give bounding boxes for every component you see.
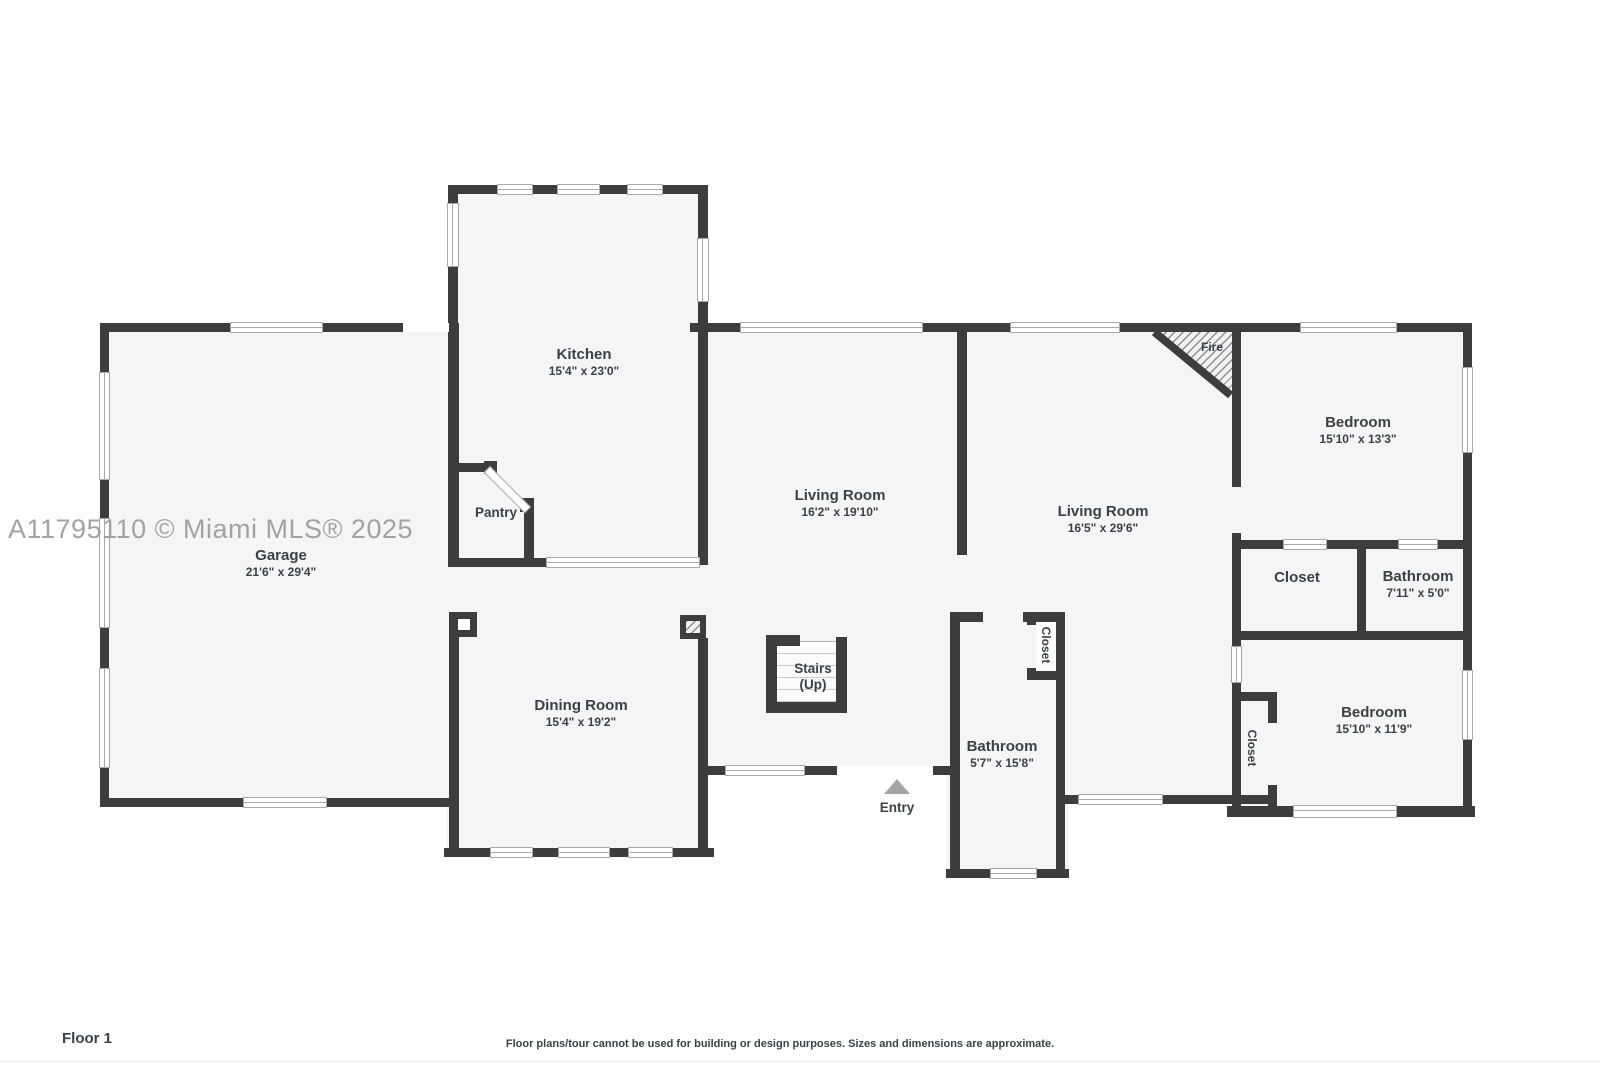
window	[725, 765, 805, 776]
wall	[1357, 540, 1366, 640]
window	[1462, 670, 1473, 740]
room-name: Dining Room	[534, 697, 627, 715]
room-name: Entry	[880, 800, 915, 816]
room-label-living-room-1: Living Room 16'2" x 19'10"	[795, 487, 886, 521]
window	[1010, 322, 1120, 333]
window	[740, 322, 923, 333]
room-name: Closet	[1274, 569, 1320, 587]
window	[1231, 646, 1242, 683]
wall	[1232, 332, 1241, 807]
window	[99, 668, 110, 768]
room-dims: 16'2" x 19'10"	[795, 505, 886, 521]
door-opening	[1232, 487, 1241, 533]
room-floor	[449, 560, 708, 615]
room-name: Living Room	[795, 487, 886, 505]
window	[627, 184, 663, 195]
window	[1293, 805, 1397, 818]
room-name: Pantry	[475, 505, 517, 521]
room-label-stairs: Stairs (Up)	[794, 661, 832, 693]
window	[557, 184, 600, 195]
door-opening	[1268, 723, 1277, 785]
window	[1462, 367, 1473, 453]
room-name: Bathroom	[1383, 568, 1454, 586]
window	[990, 868, 1037, 879]
window	[230, 322, 323, 333]
window	[697, 238, 709, 302]
window	[628, 847, 673, 858]
window	[1283, 539, 1327, 550]
wall	[1232, 631, 1472, 640]
room-label-dining-room: Dining Room 15'4" x 19'2"	[534, 697, 627, 731]
room-name: Closet	[1039, 627, 1053, 664]
room-label-kitchen: Kitchen 15'4" x 23'0"	[549, 346, 619, 380]
room-dims: 15'4" x 23'0"	[549, 364, 619, 380]
room-dims: 16'5" x 29'6"	[1058, 521, 1149, 537]
window	[447, 203, 459, 267]
room-label-garage: Garage 21'6" x 29'4"	[246, 547, 316, 581]
column-detail-hatched	[686, 621, 700, 633]
wall	[1056, 612, 1065, 878]
window	[99, 372, 110, 480]
room-name: Bedroom	[1319, 414, 1396, 432]
room-dims: 15'10" x 11'9"	[1336, 722, 1412, 738]
room-name: Fire	[1201, 340, 1223, 354]
floor-plan: Garage 21'6" x 29'4" Kitchen 15'4" x 23'…	[0, 0, 1600, 1066]
door-opening	[837, 766, 933, 775]
wall	[448, 558, 546, 567]
room-label-bedroom-2: Bedroom 15'10" x 11'9"	[1336, 704, 1412, 738]
window	[490, 847, 533, 858]
wall	[950, 612, 960, 878]
room-dims: 21'6" x 29'4"	[246, 565, 316, 581]
room-floor	[446, 610, 708, 853]
wall	[957, 332, 967, 555]
room-name: Garage	[246, 547, 316, 565]
room-dims: 15'10" x 13'3"	[1319, 432, 1396, 448]
room-name: Living Room	[1058, 503, 1149, 521]
floor-plan-page: Garage 21'6" x 29'4" Kitchen 15'4" x 23'…	[0, 0, 1600, 1066]
entry-arrow-icon	[884, 779, 910, 794]
room-label-bedroom-1: Bedroom 15'10" x 13'3"	[1319, 414, 1396, 448]
room-name: Kitchen	[549, 346, 619, 364]
door-opening	[983, 612, 1023, 622]
stairs-direction: (Up)	[794, 677, 832, 693]
room-label-bathroom-2: Bathroom 5'7" x 15'8"	[967, 738, 1038, 772]
room-label-closet-3: Closet	[1039, 627, 1053, 664]
window	[497, 184, 533, 195]
disclaimer-text: Floor plans/tour cannot be used for buil…	[506, 1038, 1054, 1050]
door-opening	[1027, 625, 1036, 668]
door-opening	[449, 567, 459, 612]
window	[558, 847, 610, 858]
wall	[766, 635, 800, 646]
room-name: Bathroom	[967, 738, 1038, 756]
window	[546, 557, 700, 568]
door-opening	[403, 323, 449, 332]
room-label-closet-2: Closet	[1245, 730, 1259, 767]
window	[243, 797, 327, 808]
room-name: Closet	[1245, 730, 1259, 767]
window	[1078, 794, 1163, 805]
window	[1398, 539, 1438, 550]
room-dims: 15'4" x 19'2"	[534, 715, 627, 731]
wall	[698, 638, 708, 857]
room-dims: 7'11" x 5'0"	[1383, 586, 1454, 602]
room-label-pantry: Pantry	[475, 505, 517, 521]
divider-line	[0, 1061, 1600, 1062]
mls-watermark: A11795110 © Miami MLS® 2025	[8, 514, 413, 545]
room-name: Bedroom	[1336, 704, 1412, 722]
room-label-entry: Entry	[880, 800, 915, 816]
floor-label: Floor 1	[62, 1030, 112, 1047]
room-label-fireplace: Fire	[1201, 340, 1223, 354]
room-label-bathroom-1: Bathroom 7'11" x 5'0"	[1383, 568, 1454, 602]
room-label-living-room-2: Living Room 16'5" x 29'6"	[1058, 503, 1149, 537]
window	[1300, 322, 1397, 333]
stairs-name: Stairs	[794, 661, 832, 677]
room-label-closet-1: Closet	[1274, 569, 1320, 587]
room-dims: 5'7" x 15'8"	[967, 756, 1038, 772]
column-detail	[458, 619, 470, 630]
wall	[766, 702, 847, 713]
